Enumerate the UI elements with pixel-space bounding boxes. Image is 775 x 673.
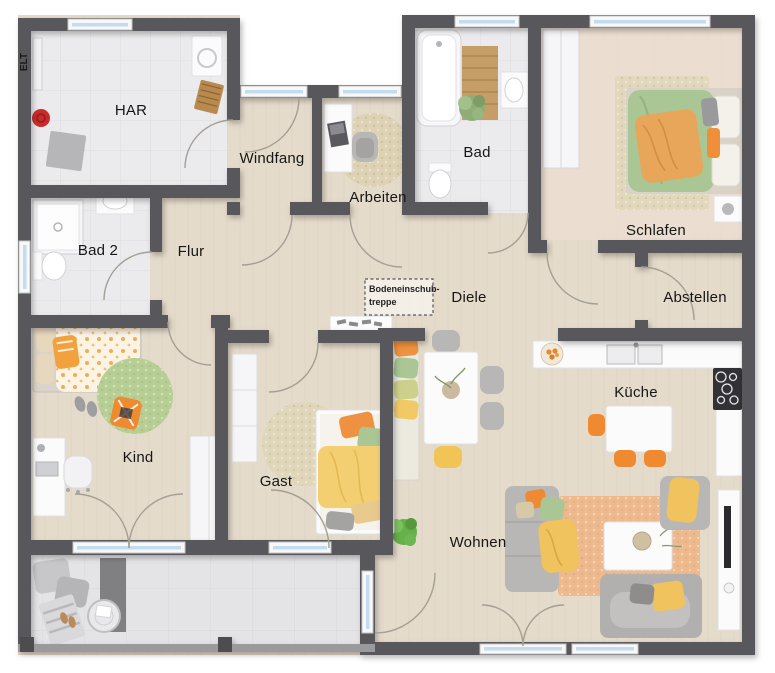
attic-ladder-annotation: Bodeneinschub- treppe [365,279,440,315]
window-bad [455,16,519,27]
floor-plan: ELT HAR Windfang Arbeiten Bad Schlafen B… [0,0,775,673]
terrace-post [218,637,232,652]
pillow-orange [707,128,720,158]
label-bad: Bad [463,144,490,161]
label-schlafen: Schlafen [626,222,686,239]
label-kind: Kind [123,449,154,466]
attic-ladder-line2: treppe [369,297,397,307]
fruit-bowl [541,343,563,365]
window-bad2-left [19,241,30,293]
label-gast: Gast [260,473,293,490]
chair [64,456,92,488]
window-schlafen [590,16,710,27]
tv [724,506,731,568]
attic-ladder-line1: Bodeneinschub- [369,284,440,294]
window-har [68,19,132,30]
window-wohnen-bottom [572,644,638,654]
label-wohnen: Wohnen [450,534,507,551]
sink-left [607,345,635,364]
label-arbeiten: Arbeiten [349,189,406,206]
door-wohnen-left [362,571,373,633]
kitchen-table [606,406,672,452]
door-gast-terrace [269,542,331,553]
toilet [42,252,66,280]
wardrobe [232,354,257,462]
toilet-tank [33,252,42,280]
terrace-post [20,637,34,652]
window-arbeiten [339,86,401,97]
sink-right [638,345,662,364]
label-har: HAR [115,102,147,119]
red-appliance [32,109,50,127]
floorplan-svg: ELT HAR Windfang Arbeiten Bad Schlafen B… [0,0,775,673]
label-flur: Flur [178,243,205,260]
label-windfang: Windfang [240,150,305,167]
toilet [429,170,451,198]
label-bad2: Bad 2 [78,242,118,259]
terrace-edge [18,644,375,652]
label-elt: ELT [19,53,30,71]
label-abstellen: Abstellen [663,289,727,306]
label-kueche: Küche [614,384,658,401]
entry-door-windfang [241,86,307,97]
label-diele: Diele [451,289,486,306]
